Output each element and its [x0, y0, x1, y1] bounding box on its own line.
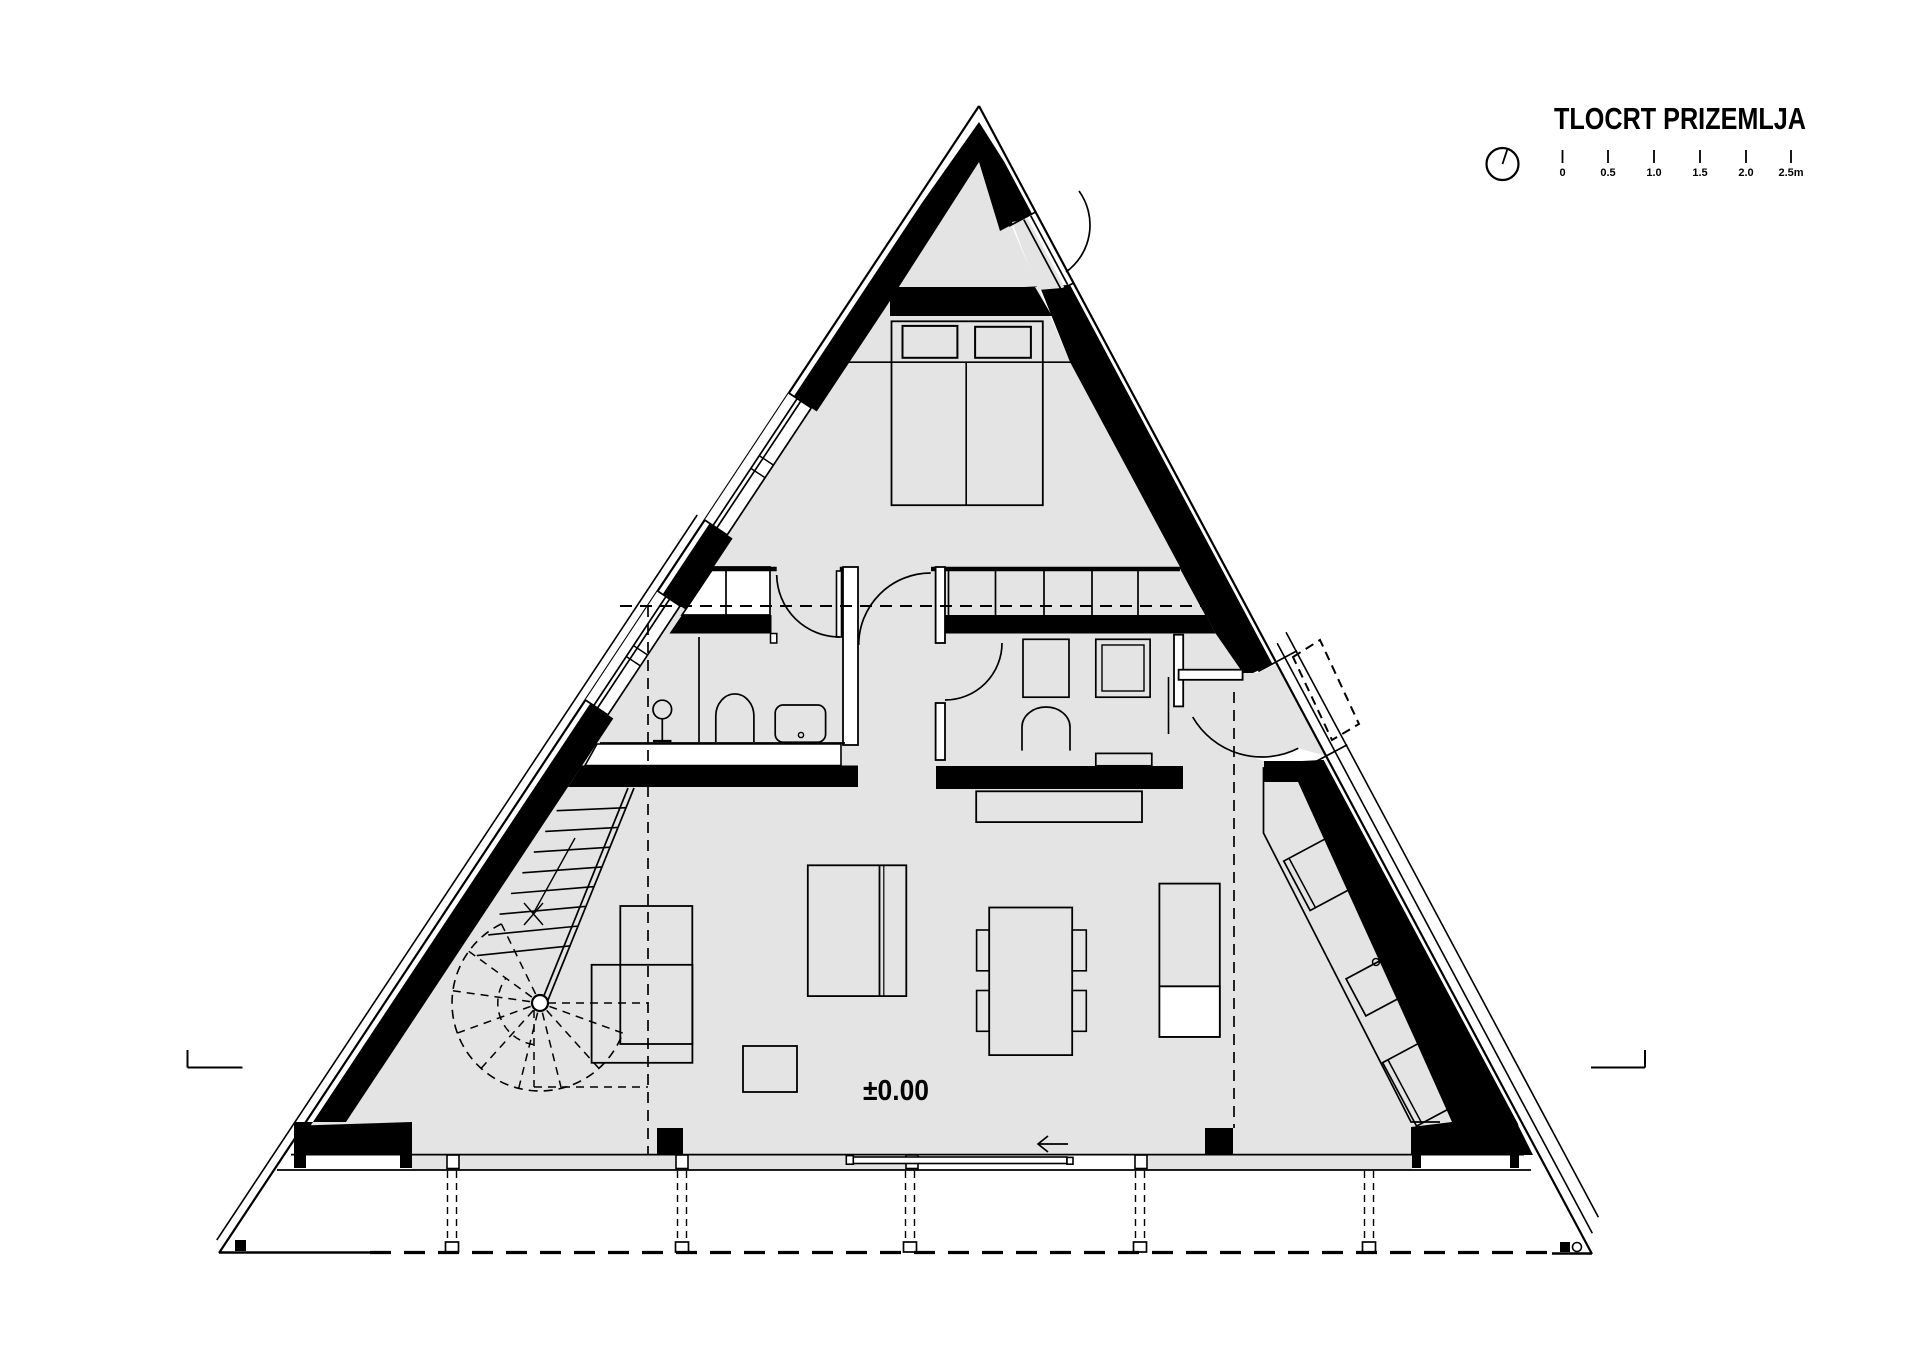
svg-text:1.5: 1.5: [1692, 167, 1707, 179]
svg-text:0: 0: [1559, 167, 1565, 179]
svg-text:0.5: 0.5: [1600, 167, 1615, 179]
svg-text:±0.00: ±0.00: [863, 1075, 929, 1107]
svg-text:1.0: 1.0: [1646, 167, 1661, 179]
svg-text:2.0: 2.0: [1738, 167, 1753, 179]
svg-text:TLOCRT PRIZEMLJA: TLOCRT PRIZEMLJA: [1554, 101, 1806, 136]
svg-text:2.5m: 2.5m: [1778, 167, 1803, 179]
